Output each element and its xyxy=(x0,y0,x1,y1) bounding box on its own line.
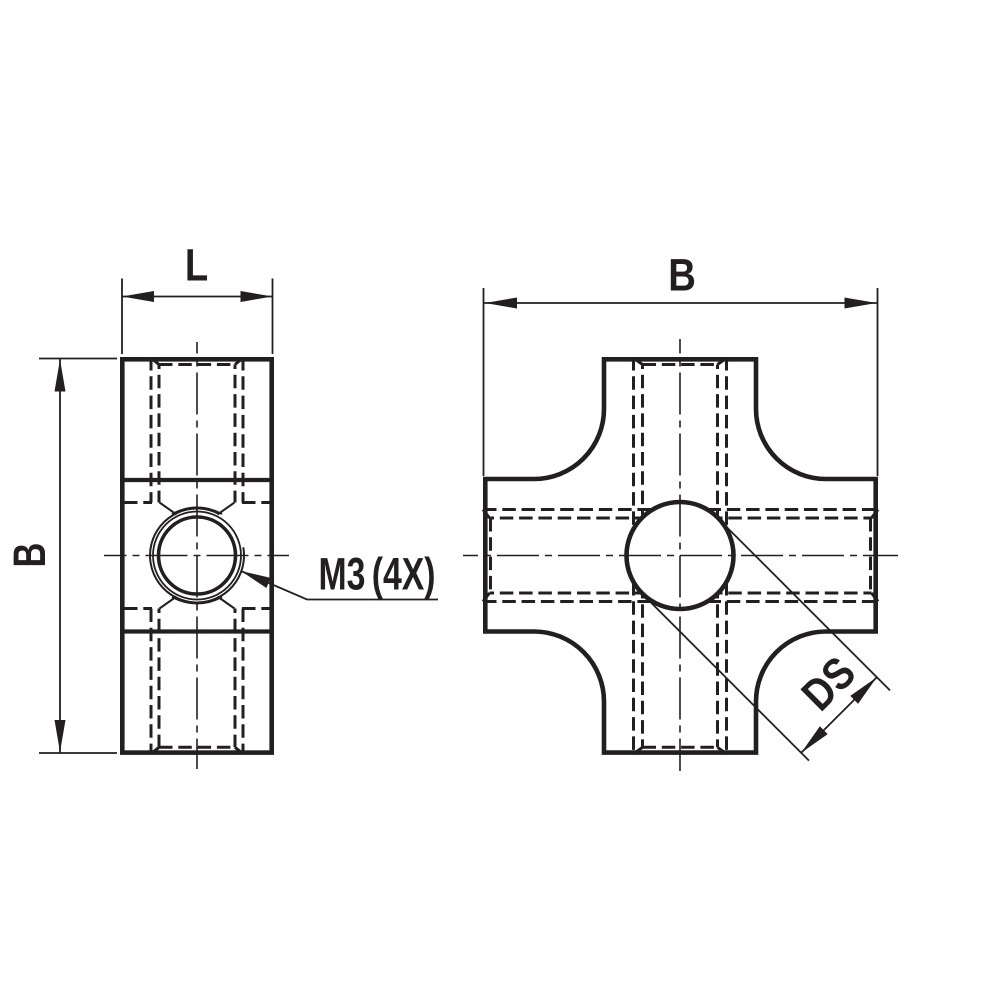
svg-text:B: B xyxy=(668,250,696,301)
svg-text:L: L xyxy=(185,240,208,291)
svg-text:DS: DS xyxy=(792,647,865,720)
svg-text:M3 (4X): M3 (4X) xyxy=(318,550,435,600)
svg-text:B: B xyxy=(6,543,56,568)
